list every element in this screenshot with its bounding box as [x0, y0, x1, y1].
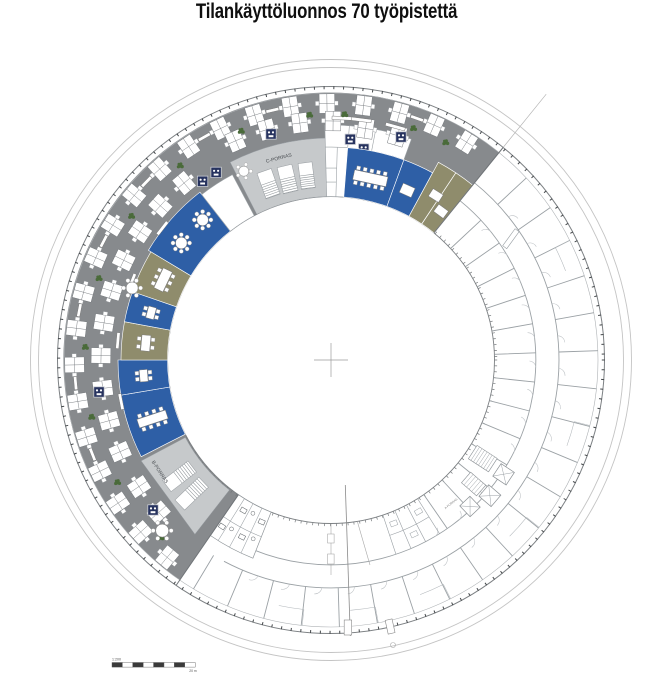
svg-text:A-PORRAS: A-PORRAS [444, 497, 459, 510]
svg-text:1:200: 1:200 [112, 658, 121, 662]
svg-text:20 m: 20 m [189, 669, 197, 673]
